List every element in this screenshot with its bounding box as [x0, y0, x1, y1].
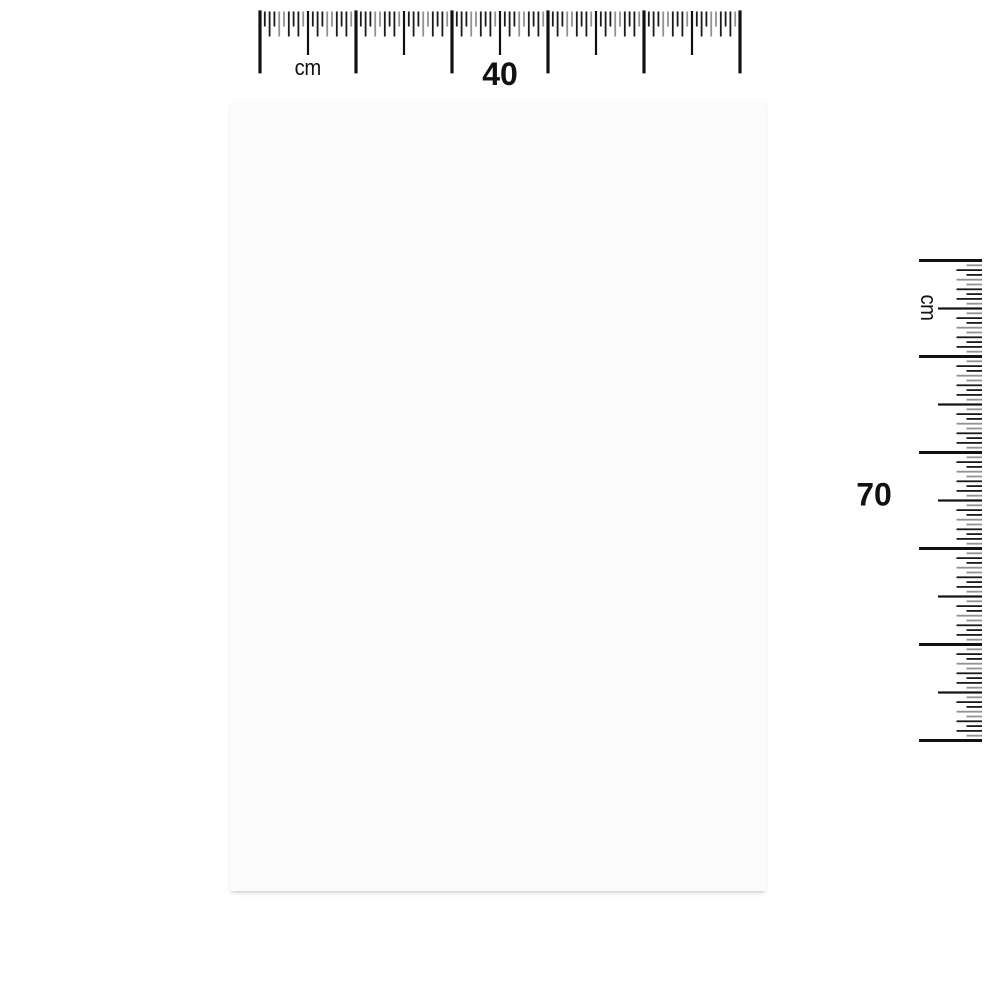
svg-text:40: 40 [482, 56, 518, 92]
svg-text:cm: cm [916, 294, 940, 320]
svg-text:70: 70 [856, 477, 892, 513]
svg-text:cm: cm [295, 56, 321, 80]
